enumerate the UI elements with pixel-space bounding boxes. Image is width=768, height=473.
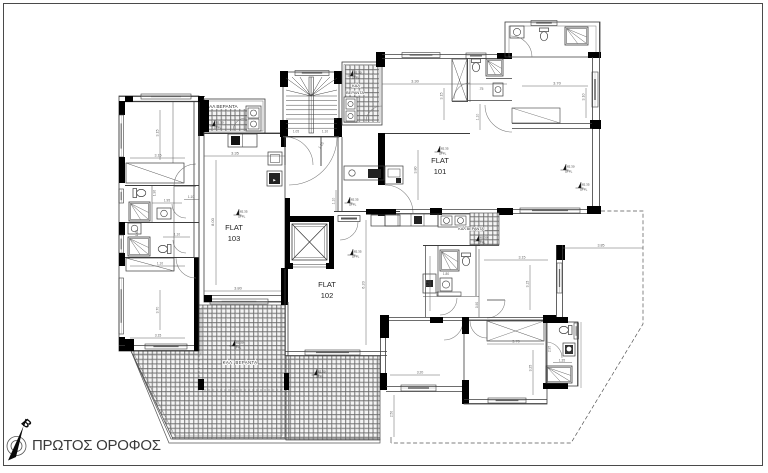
- svg-text:FFL: FFL: [240, 215, 246, 219]
- svg-text:82.35: 82.35: [351, 198, 359, 202]
- svg-text:1.10: 1.10: [332, 198, 336, 205]
- svg-text:ΚΑΛ ΒΕΡΑΝΤΑ: ΚΑΛ ΒΕΡΑΝΤΑ: [458, 227, 484, 231]
- svg-text:82.30: 82.30: [480, 236, 488, 240]
- svg-text:1.95: 1.95: [164, 199, 170, 203]
- svg-text:101: 101: [434, 167, 447, 176]
- svg-text:102: 102: [321, 291, 334, 300]
- svg-text:82.30: 82.30: [236, 341, 244, 345]
- svg-text:1.10: 1.10: [174, 233, 180, 237]
- svg-text:3.15: 3.15: [519, 256, 526, 260]
- svg-text:1.35: 1.35: [559, 359, 565, 363]
- svg-text:ΠΡΩΤΟΣ ΟΡΟΦΟΣ: ΠΡΩΤΟΣ ΟΡΟΦΟΣ: [32, 437, 161, 454]
- svg-text:FLAT: FLAT: [431, 156, 449, 165]
- svg-text:3.15: 3.15: [426, 280, 430, 287]
- svg-text:FFL: FFL: [318, 375, 324, 379]
- svg-text:2.50: 2.50: [390, 411, 394, 417]
- svg-text:3.20: 3.20: [417, 371, 424, 375]
- svg-text:1.90: 1.90: [153, 190, 157, 196]
- svg-text:82.30: 82.30: [567, 165, 575, 169]
- svg-text:82.35: 82.35: [354, 250, 362, 254]
- svg-text:FFL: FFL: [567, 170, 573, 174]
- svg-text:3.85: 3.85: [598, 244, 605, 248]
- svg-text:ΚΑΛ: ΚΑΛ: [352, 83, 360, 88]
- svg-text:3.70: 3.70: [553, 81, 562, 86]
- svg-text:FFL: FFL: [441, 152, 447, 156]
- svg-text:1.80: 1.80: [443, 272, 449, 276]
- svg-text:3.35: 3.35: [231, 151, 240, 156]
- svg-text:2.95: 2.95: [548, 346, 552, 352]
- svg-text:6.20: 6.20: [362, 281, 366, 288]
- svg-text:FLAT: FLAT: [225, 223, 243, 232]
- svg-text:3.70: 3.70: [512, 340, 519, 344]
- svg-text:.75: .75: [479, 87, 484, 91]
- svg-text:ΒΕΡΑΝΤΑ: ΒΕΡΑΝΤΑ: [346, 90, 364, 95]
- svg-text:3.15: 3.15: [440, 93, 444, 100]
- svg-text:1.10: 1.10: [322, 130, 328, 134]
- svg-text:FFL: FFL: [354, 255, 360, 259]
- svg-text:82.35: 82.35: [441, 147, 449, 151]
- svg-text:1.10: 1.10: [157, 262, 163, 266]
- svg-text:0.90: 0.90: [475, 302, 479, 308]
- svg-text:FLAT: FLAT: [318, 280, 336, 289]
- svg-text:3.15: 3.15: [155, 334, 162, 338]
- svg-text:FFL: FFL: [480, 241, 486, 245]
- svg-text:FFL: FFL: [236, 346, 242, 350]
- svg-text:82.35: 82.35: [582, 183, 590, 187]
- svg-text:3.30: 3.30: [411, 79, 420, 84]
- svg-text:1.60: 1.60: [135, 230, 139, 236]
- svg-text:3.10: 3.10: [582, 94, 586, 101]
- svg-text:8.00: 8.00: [210, 217, 215, 226]
- svg-text:FFL: FFL: [351, 203, 357, 207]
- svg-text:82.30: 82.30: [354, 71, 362, 75]
- svg-text:82.30: 82.30: [216, 121, 224, 125]
- svg-text:1.05: 1.05: [293, 130, 299, 134]
- svg-text:3.15: 3.15: [156, 130, 160, 137]
- svg-text:ΚΑΛ ΒΕΡΑΝΤΑ: ΚΑΛ ΒΕΡΑΝΤΑ: [206, 104, 238, 109]
- svg-text:3.80: 3.80: [414, 167, 418, 174]
- svg-text:82.35: 82.35: [240, 210, 248, 214]
- svg-text:FFL: FFL: [354, 76, 360, 80]
- svg-text:ΚΑΛ. ΒΕΡΑΝΤΑ: ΚΑΛ. ΒΕΡΑΝΤΑ: [223, 360, 258, 365]
- svg-text:3.70: 3.70: [156, 307, 160, 314]
- svg-text:3.25: 3.25: [529, 365, 533, 372]
- svg-text:82.30: 82.30: [318, 370, 326, 374]
- svg-text:FFL: FFL: [582, 188, 588, 192]
- svg-text:3.80: 3.80: [234, 286, 243, 291]
- svg-text:B: B: [19, 417, 33, 432]
- svg-text:FFL: FFL: [216, 126, 222, 130]
- svg-text:1.10: 1.10: [476, 114, 480, 121]
- svg-text:103: 103: [228, 234, 241, 243]
- svg-text:3.15: 3.15: [155, 154, 162, 158]
- svg-text:1.10: 1.10: [188, 195, 194, 199]
- svg-text:3.15: 3.15: [526, 281, 530, 288]
